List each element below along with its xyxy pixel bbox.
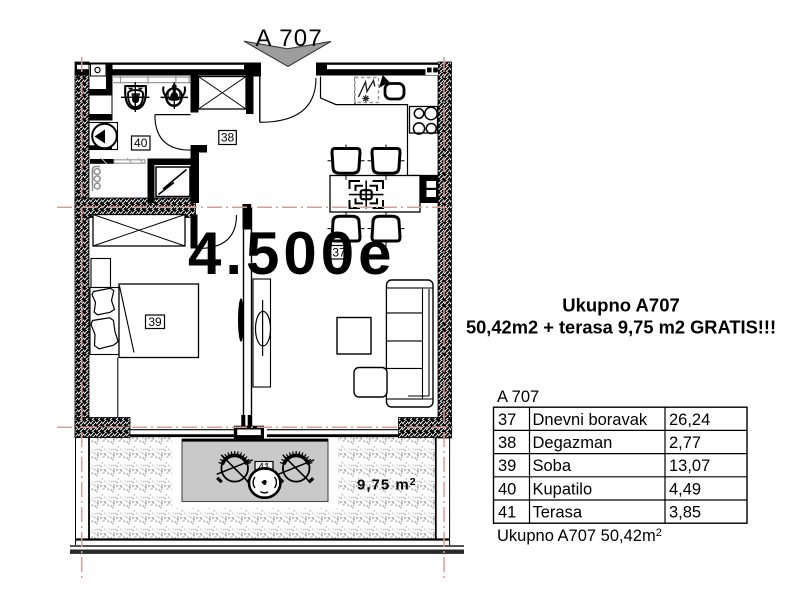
svg-text:4.500e: 4.500e bbox=[188, 220, 396, 287]
svg-text:41: 41 bbox=[498, 504, 516, 522]
svg-text:40: 40 bbox=[498, 480, 516, 498]
svg-text:Ukupno A707: Ukupno A707 bbox=[562, 295, 680, 316]
svg-text:40: 40 bbox=[134, 136, 148, 150]
svg-text:13,07: 13,07 bbox=[669, 457, 710, 475]
svg-text:39: 39 bbox=[148, 315, 162, 329]
svg-text:50,42m2 + terasa 9,75 m2 GRATI: 50,42m2 + terasa 9,75 m2 GRATIS!!! bbox=[466, 317, 776, 338]
svg-text:Dnevni boravak: Dnevni boravak bbox=[533, 411, 648, 429]
svg-text:Degazman: Degazman bbox=[533, 434, 613, 452]
svg-text:37: 37 bbox=[498, 411, 516, 429]
svg-text:38: 38 bbox=[498, 434, 516, 452]
svg-text:A 707: A 707 bbox=[497, 388, 539, 406]
svg-text:9,75 m2: 9,75 m2 bbox=[357, 476, 417, 494]
svg-text:26,24: 26,24 bbox=[669, 411, 710, 429]
svg-text:Ukupno A707 50,42m2: Ukupno A707 50,42m2 bbox=[497, 527, 662, 545]
svg-text:4,49: 4,49 bbox=[669, 480, 701, 498]
svg-text:Kupatilo: Kupatilo bbox=[533, 480, 593, 498]
svg-text:A 707: A 707 bbox=[256, 25, 323, 52]
svg-text:39: 39 bbox=[498, 457, 516, 475]
svg-text:3,85: 3,85 bbox=[669, 504, 701, 522]
svg-text:41: 41 bbox=[258, 461, 270, 473]
svg-text:Terasa: Terasa bbox=[533, 504, 583, 522]
svg-text:2,77: 2,77 bbox=[669, 434, 701, 452]
svg-text:Soba: Soba bbox=[533, 457, 572, 475]
svg-text:38: 38 bbox=[221, 131, 235, 145]
